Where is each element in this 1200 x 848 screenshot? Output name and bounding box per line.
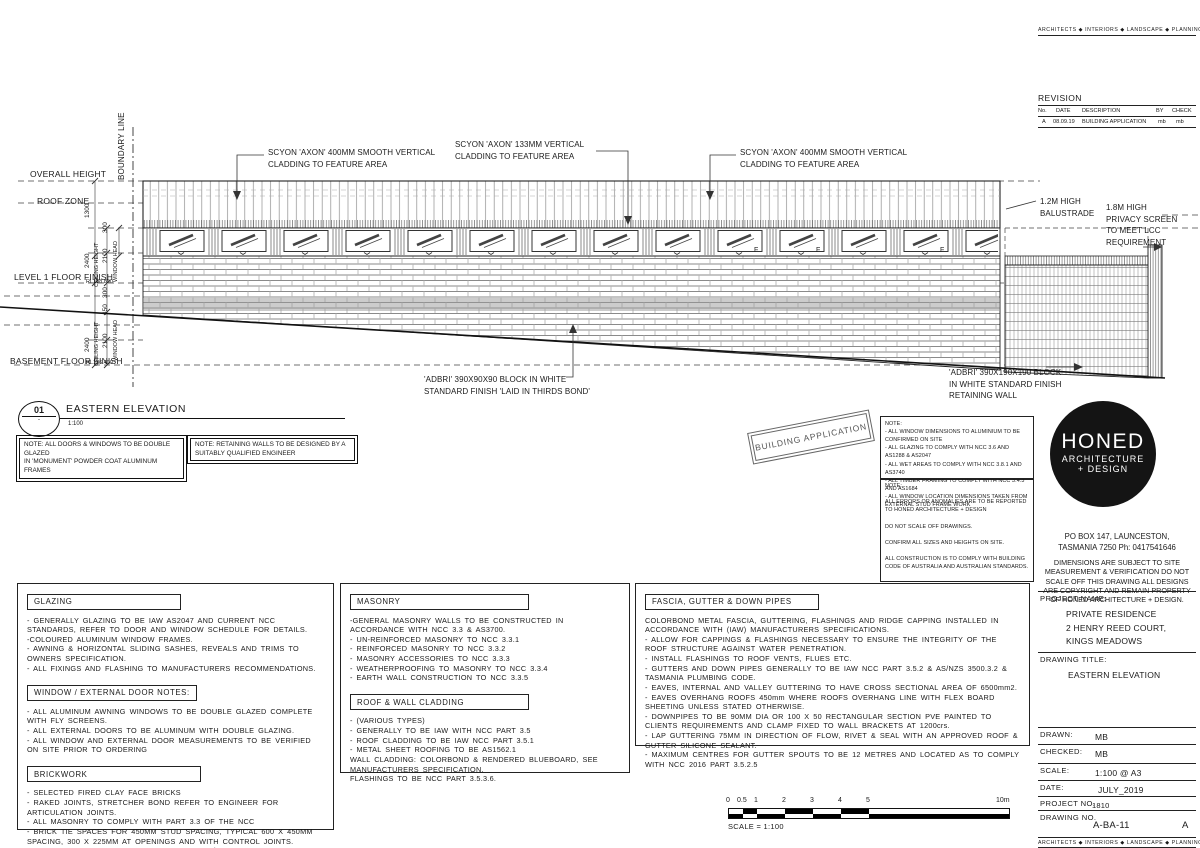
spec-column-mid: MASONRY -GENERAL MASONRY WALLS TO BE CON… [340, 583, 630, 773]
divider [1038, 780, 1196, 781]
notes-panel-title: NOTE: [885, 483, 902, 489]
fascia-heading: FASCIA, GUTTER & DOWN PIPES [645, 594, 819, 610]
adbri-block-note-right: 'ADBRI' 390X190X190 BLOCK IN WHITE STAND… [949, 367, 1061, 402]
revision-title: REVISION [1038, 93, 1196, 103]
scale-tick: 0.5 [737, 797, 747, 804]
window-type-label: F [816, 247, 820, 254]
scale-label: SCALE: [1040, 766, 1069, 775]
balustrade-label: 1.2M HIGH BALUSTRADE [1040, 196, 1094, 219]
brand-line-top: ARCHITECTS ◆ INTERIORS ◆ LANDSCAPE ◆ PLA… [1038, 27, 1196, 36]
dim-300-upper: 300 [102, 222, 109, 233]
scale-tick: 2 [782, 797, 786, 804]
callout-cladding-mid: SCYON 'AXON' 133MM VERTICAL CLADDING TO … [455, 139, 584, 162]
window-head-label-upper: WINDOW HEAD [113, 241, 119, 282]
project-no-label: PROJECT NO. [1040, 799, 1095, 808]
notes-panel-window: NOTE: - ALL WINDOW DIMENSIONS TO ALUMINI… [880, 416, 1034, 480]
title-underline [60, 418, 345, 419]
drawing-title-label: DRAWING TITLE: [1040, 655, 1107, 664]
project-name-label: PROJECT NAME: [1040, 594, 1107, 603]
privacy-screen-label: 1.8M HIGH PRIVACY SCREEN TO MEET LCC REQ… [1106, 202, 1177, 248]
drawing-rev: A [1182, 818, 1189, 833]
drawn-value: MB [1095, 731, 1108, 745]
scale-tick: 1 [754, 797, 758, 804]
roof-cladding-heading: ROOF & WALL CLADDING [350, 694, 529, 710]
elevation-number: 01 [19, 402, 59, 415]
honed-logo: HONED ARCHITECTURE + DESIGN [1050, 401, 1156, 507]
project-name: PRIVATE RESIDENCE 2 HENRY REED COURT, KI… [1066, 608, 1166, 649]
date-label: DATE: [1040, 783, 1064, 792]
brick-wall [143, 256, 1000, 370]
callout-cladding-right: SCYON 'AXON' 400MM SMOOTH VERTICAL CLADD… [740, 147, 907, 170]
scale-tick: 5 [866, 797, 870, 804]
checked-label: CHECKED: [1040, 747, 1082, 756]
retaining-wall [1005, 265, 1148, 378]
scale-bar-graphic [728, 808, 1010, 819]
right-wing [1005, 228, 1162, 378]
revision-col-date: DATE [1056, 108, 1071, 114]
logo-line3: + DESIGN [1050, 464, 1156, 474]
drawing-title: EASTERN ELEVATION [1068, 669, 1160, 683]
elevation-linework: F F F [0, 115, 1200, 400]
drawing-sheet: ARCHITECTS ◆ INTERIORS ◆ LANDSCAPE ◆ PLA… [0, 0, 1200, 848]
scale-bar-bottom-row [729, 814, 1009, 819]
roof-zone-label: ROOF ZONE [37, 196, 89, 206]
divider [1038, 727, 1196, 728]
glazing-heading: GLAZING [27, 594, 181, 610]
ceiling-height-label-lower: CEILING HEIGHT [94, 322, 100, 366]
building-application-stamp: BUILDING APPLICATION [751, 413, 872, 461]
revision-col-no: No. [1038, 108, 1047, 114]
privacy-screen [1148, 245, 1162, 378]
dim-450: 450 [102, 304, 109, 315]
scale-tick: 4 [838, 797, 842, 804]
window-door-heading: WINDOW / EXTERNAL DOOR NOTES: [27, 685, 197, 701]
window-type-label: F [754, 247, 758, 254]
notes-panel-body: ALL ERRORS OR ANOMALIES ARE TO BE REPORT… [885, 499, 1028, 570]
spec-column-right: FASCIA, GUTTER & DOWN PIPES COLORBOND ME… [635, 583, 1030, 746]
dim-roof-zone: 1300 [84, 204, 91, 218]
note-doors-windows: NOTE: ALL DOORS & WINDOWS TO BE DOUBLE G… [19, 438, 184, 479]
notes-panel-general: NOTE: ALL ERRORS OR ANOMALIES ARE TO BE … [880, 478, 1034, 582]
notes-panel-title: NOTE: [885, 421, 902, 427]
scale-tick: 0 [726, 797, 730, 804]
callout-cladding-left: SCYON 'AXON' 400MM SMOOTH VERTICAL CLADD… [268, 147, 435, 170]
window-head-label-lower: WINDOW HEAD [113, 320, 119, 361]
brand-line-bottom: ARCHITECTS ◆ INTERIORS ◆ LANDSCAPE ◆ PLA… [1038, 837, 1196, 848]
drawing-no-value: A-BA-11 [1093, 818, 1130, 833]
checked-value: MB [1095, 748, 1108, 762]
window-type-label: F [940, 247, 944, 254]
revision-col-description: DESCRIPTION [1082, 108, 1120, 114]
scale-bar-label: SCALE = 1:100 [728, 822, 784, 831]
dim-300-lower: 300 [102, 287, 109, 298]
note-retaining-walls: NOTE: RETAINING WALLS TO BE DESIGNED BY … [190, 438, 355, 461]
brick-shadow-band [143, 298, 1000, 311]
roof-cladding-body: - (VARIOUS TYPES) - GENERALLY TO BE IAW … [350, 716, 620, 783]
brickwork-body: - SELECTED FIRED CLAY FACE BRICKS - RAKE… [27, 788, 324, 848]
scale-tick: 3 [810, 797, 814, 804]
logo-name: HONED [1050, 401, 1156, 454]
revision-col-check: CHECK [1172, 108, 1192, 114]
elevation-title-bubble: 01 - [18, 401, 60, 437]
wall-capping [1005, 256, 1148, 265]
boundary-line-label: BOUNDARY LINE [117, 112, 126, 180]
drawn-label: DRAWN: [1040, 730, 1073, 739]
fascia-body: COLORBOND METAL FASCIA, GUTTERING, FLASH… [645, 616, 1020, 770]
overall-height-label: OVERALL HEIGHT [30, 169, 106, 179]
divider [1038, 796, 1196, 797]
elevation-title: EASTERN ELEVATION [66, 403, 186, 415]
divider [1038, 744, 1196, 745]
masonry-heading: MASONRY [350, 594, 529, 610]
divider [1038, 810, 1196, 811]
adbri-block-note-left: 'ADBRI' 390X90X90 BLOCK IN WHITE STANDAR… [424, 374, 590, 397]
ceiling-height-label-upper: CEILING HEIGHT [94, 243, 100, 287]
divider [1038, 763, 1196, 764]
glazing-body: - GENERALLY GLAZING TO BE IAW AS2047 AND… [27, 616, 324, 674]
brickwork-heading: BRICKWORK [27, 766, 201, 782]
scale-value: 1:100 @ A3 [1095, 767, 1142, 781]
spec-column-left: GLAZING - GENERALLY GLAZING TO BE IAW AS… [17, 583, 334, 830]
dim-ceiling-upper: 2400 [84, 254, 91, 268]
masonry-body: -GENERAL MASONRY WALLS TO BE CONSTRUCTED… [350, 616, 620, 683]
divider [1038, 652, 1196, 653]
drawing-no-label: DRAWING NO. [1040, 813, 1096, 822]
logo-line2: ARCHITECTURE [1050, 454, 1156, 464]
dim-window-upper: 2100 [102, 249, 109, 263]
divider [1038, 591, 1196, 592]
dim-ceiling-lower: 2400 [84, 338, 91, 352]
elevation-bubble-dot: - [22, 416, 56, 423]
window-door-body: - ALL ALUMINUM AWNING WINDOWS TO BE DOUB… [27, 707, 324, 755]
scale-tick: 10m [996, 797, 1010, 804]
firm-address: PO BOX 147, LAUNCESTON, TASMANIA 7250 Ph… [1038, 532, 1196, 554]
elevation-scale: 1:100 [68, 421, 83, 427]
revision-col-by: BY [1156, 108, 1163, 114]
dim-window-lower: 2100 [102, 334, 109, 348]
